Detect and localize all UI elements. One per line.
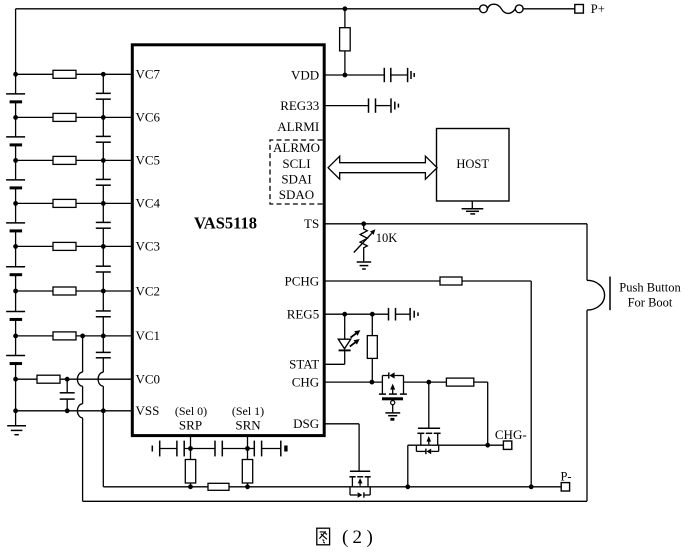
svg-text:ALRMI: ALRMI (277, 119, 319, 134)
svg-text:Push Button: Push Button (619, 280, 681, 294)
svg-text:SRN: SRN (235, 418, 261, 433)
svg-text:STAT: STAT (289, 357, 319, 372)
svg-text:2: 2 (353, 527, 363, 548)
svg-text:PCHG: PCHG (285, 273, 320, 288)
svg-text:VC0: VC0 (136, 372, 161, 387)
svg-text:HOST: HOST (456, 157, 489, 171)
svg-text:SDAO: SDAO (279, 187, 314, 202)
svg-text:For Boot: For Boot (628, 295, 673, 309)
svg-text:VAS5118: VAS5118 (194, 213, 257, 232)
svg-text:(Sel 1): (Sel 1) (232, 404, 264, 418)
svg-text:REG5: REG5 (287, 307, 320, 322)
svg-text:VC1: VC1 (136, 328, 161, 343)
svg-text:CHG-: CHG- (495, 427, 527, 442)
svg-text:SCLI: SCLI (282, 156, 310, 171)
svg-text:P-: P- (560, 469, 571, 483)
svg-text:CHG: CHG (292, 374, 319, 389)
svg-text:): ) (367, 527, 373, 548)
svg-text:VC2: VC2 (136, 283, 161, 298)
svg-text:TS: TS (304, 216, 319, 231)
svg-text:(: ( (342, 527, 348, 548)
svg-text:VSS: VSS (136, 403, 160, 418)
svg-text:REG33: REG33 (280, 98, 319, 113)
svg-text:VC4: VC4 (136, 196, 161, 211)
svg-text:VC3: VC3 (136, 239, 161, 254)
svg-text:VC6: VC6 (136, 110, 161, 125)
svg-text:DSG: DSG (293, 416, 319, 431)
svg-text:P+: P+ (591, 2, 605, 16)
svg-text:VC7: VC7 (136, 67, 161, 82)
svg-text:SDAI: SDAI (281, 172, 311, 187)
svg-text:VDD: VDD (291, 67, 319, 82)
svg-text:VC5: VC5 (136, 153, 161, 168)
svg-text:ALRMO: ALRMO (273, 140, 320, 155)
svg-text:(Sel 0): (Sel 0) (175, 404, 207, 418)
svg-text:10K: 10K (376, 231, 398, 245)
svg-text:SRP: SRP (179, 418, 202, 433)
